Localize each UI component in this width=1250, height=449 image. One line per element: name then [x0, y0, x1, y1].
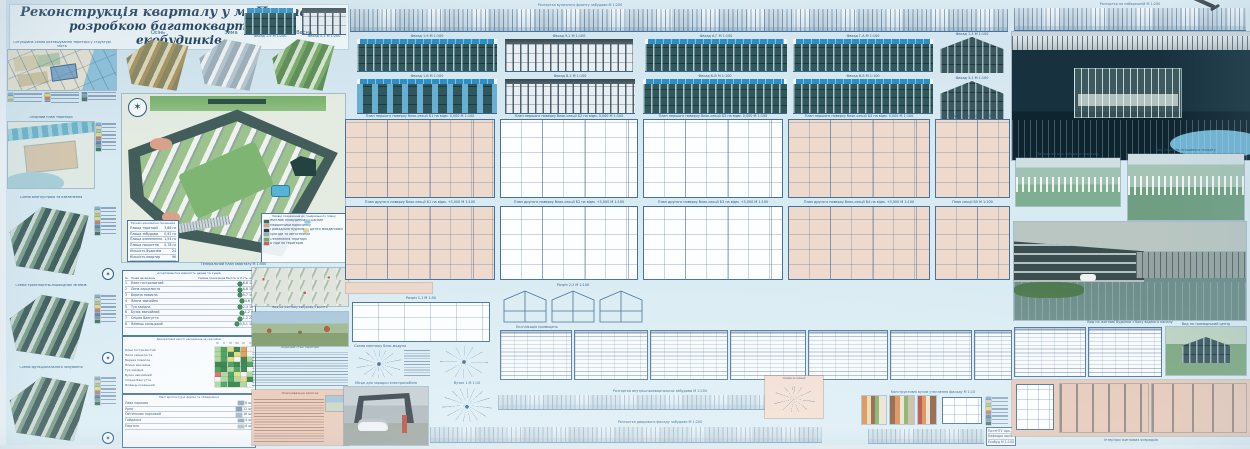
- matrix-cell: [215, 372, 221, 377]
- legend-chip: [95, 221, 100, 224]
- legend-line: [101, 303, 116, 304]
- equipment-table: Малі архітектурні форми та обладнання Ла…: [122, 394, 256, 448]
- greening-legend: [95, 206, 116, 266]
- interior-photo-2: [1152, 384, 1246, 432]
- pavilion-lit-band: [1078, 94, 1178, 106]
- facade-f3: [645, 39, 787, 72]
- strip2-caption: Розгортка дворового фасаду забудови М 1:…: [540, 420, 780, 424]
- plants-header-cell: Назва насаджень: [131, 277, 197, 281]
- legend-item: [96, 130, 116, 133]
- legend-chip: [264, 238, 269, 241]
- plants-table-title: Асортиментна відомість дерев та кущів: [125, 272, 253, 276]
- exploded-labels: [404, 350, 430, 376]
- legend-item: [82, 98, 116, 101]
- detail-mini-plan: [942, 397, 982, 424]
- legend-item: [45, 94, 79, 97]
- section-caption: Розріз 1-1 М 1:50: [352, 296, 490, 300]
- plan-caption-r2-3: План другого поверху блок-секції Б3 на в…: [643, 200, 783, 204]
- facade-body: [645, 44, 787, 71]
- legend-chip: [264, 220, 269, 223]
- table-cell: Світильник парковий: [125, 412, 235, 417]
- legend-chip: [264, 229, 269, 232]
- plants-cell: 6-8: [243, 287, 248, 292]
- legend-chip: [95, 305, 100, 308]
- park-label-chip: [208, 99, 266, 104]
- legend-chip: [95, 320, 100, 323]
- matrix-cell: [241, 347, 247, 352]
- table-cell: 1,54 га: [164, 237, 176, 242]
- matrix-cell: [221, 352, 227, 357]
- legend-item: [96, 141, 116, 144]
- legend-item: [986, 418, 1008, 421]
- legend-chip: [95, 214, 100, 217]
- legend-chip: [95, 217, 100, 220]
- street-elevation-strip-top: [350, 9, 1008, 32]
- charge-pillar: [402, 415, 407, 433]
- legend-item: В'їзди на територію: [264, 242, 303, 245]
- legend-item: Дитячі майданчики: [304, 228, 343, 231]
- plants-cell: 4: [125, 299, 130, 304]
- legend-chip: [95, 225, 100, 228]
- green-render: [1166, 327, 1246, 375]
- plants-cell: 5: [125, 305, 130, 310]
- legend-item: [95, 305, 116, 308]
- facade-f8: [793, 79, 933, 114]
- plants-cell: Бузок звичайний: [131, 310, 239, 315]
- legend-item: [95, 384, 116, 387]
- interior-photo-1: [1060, 384, 1148, 432]
- table-cell: Гойдалка: [125, 418, 237, 423]
- legend-item: [96, 133, 116, 136]
- legend-line: [992, 412, 1008, 413]
- plants-cell: 2: [125, 287, 130, 292]
- matrix-cell: [241, 372, 247, 377]
- facade-caption-f6: Фасад 8-1 М 1:100: [505, 74, 635, 78]
- legend-item: Майданчики відпочинку: [264, 224, 311, 227]
- legend-line: [102, 145, 116, 146]
- matrix-cell: [234, 362, 240, 367]
- facade-body: [357, 44, 497, 71]
- table-cell: 96: [172, 255, 176, 260]
- legend-item: [95, 402, 116, 405]
- tep-title: Техніко-економічні показники: [130, 222, 176, 225]
- plants-header-cell: Умовне позначення: [198, 277, 225, 281]
- legend-item: [96, 126, 116, 129]
- note-photo-chip: [326, 396, 346, 411]
- facade-body: [643, 84, 787, 113]
- legend-chip: [95, 228, 100, 231]
- legend-line: [992, 415, 1008, 416]
- aerial-housing-caption: Вид на житлову забудову з висоти: [252, 306, 348, 310]
- legend-item: [986, 411, 1008, 414]
- table-cell: 0,78 га: [164, 243, 176, 248]
- tep-rows: Площа території3,86 гаПлоща забудови0,92…: [130, 226, 176, 262]
- base-plan-map: [8, 122, 94, 188]
- legend-item: [95, 228, 116, 231]
- night-render: [1012, 32, 1250, 160]
- explication-caption: Експлікація приміщень: [502, 325, 572, 329]
- site-state-caption: Існуючий стан території: [252, 346, 348, 350]
- table-row: ЕкобудинкиМ 1:100: [988, 440, 1014, 446]
- facade-caption-f4: Фасад Г-А М 1:100: [793, 34, 933, 38]
- city-map-legend: [8, 92, 116, 114]
- legend-item: [96, 137, 116, 140]
- matrix-cell: [215, 377, 221, 382]
- facade-f4: [793, 39, 933, 72]
- wall-detail-1: [862, 396, 886, 424]
- legend-line: [992, 408, 1008, 409]
- matrix-cell: [241, 362, 247, 367]
- legend-chip: [45, 94, 50, 97]
- legend-chip: [95, 395, 100, 398]
- facade-caption-f1: Фасад 1-9 М 1:100: [357, 34, 497, 38]
- plants-cell: Ялина звичайна: [131, 299, 239, 304]
- legend-chip: [95, 316, 100, 319]
- schedule-table-7: [974, 330, 1012, 380]
- master-plan-caption: Генеральний план кварталу М 1:500: [122, 262, 345, 266]
- plants-cell: Клен гостролистий: [131, 281, 237, 286]
- tep-table: Техніко-економічні показники Площа терит…: [127, 220, 179, 262]
- legend-chip: [95, 313, 100, 316]
- schedule-table-4: [730, 330, 806, 380]
- facade-body: [793, 44, 933, 71]
- plan-caption-r2-4: План другого поверху блок-секції Б4 на в…: [788, 200, 930, 204]
- plants-cell: 4-6: [245, 299, 250, 304]
- plants-cell: 6-8: [243, 281, 248, 286]
- plants-cell: 0,5-1: [240, 322, 248, 327]
- matrix-cell: [234, 367, 240, 372]
- top-strip-caption: Розгортка вуличного фронту забудови М 1:…: [470, 3, 690, 7]
- gable-facade-1: [940, 37, 1004, 73]
- details-caption: Конструктивні вузли утеплення фасаду М 1…: [858, 390, 1008, 394]
- legend-item: [95, 316, 116, 319]
- ev-charging-photo: [344, 387, 428, 445]
- greening-scheme-map: [8, 204, 92, 278]
- table-cell: Площа покриттів: [130, 243, 163, 248]
- matrix-cell: [241, 382, 247, 387]
- legend-item: [986, 407, 1008, 410]
- legend-chip: [95, 302, 100, 305]
- table-cell: Площа забудови: [130, 232, 163, 237]
- legend-chip: [986, 404, 991, 407]
- legend-item: [96, 144, 116, 147]
- legend-item: [986, 400, 1008, 403]
- right-table-1: [1014, 327, 1086, 377]
- plants-cell: 7: [125, 316, 130, 321]
- season-matrix-table: Декоративні якості насаджень за сезонами…: [122, 336, 256, 394]
- table-cell: Пергола: [125, 424, 237, 429]
- photo-chip: [236, 413, 242, 417]
- matrix-cell: [234, 352, 240, 357]
- facade-caption-f2: Фасад 9-1 М 1:100: [505, 34, 633, 38]
- legend-line: [101, 310, 116, 311]
- matrix-row-label: Береза повисла: [125, 358, 214, 362]
- legend-line: [101, 233, 116, 234]
- legend-line: [101, 215, 116, 216]
- facade-body: [793, 84, 933, 113]
- plants-cell: Береза повисла: [131, 293, 237, 298]
- schedule-table-5: [808, 330, 888, 380]
- legend-item: [95, 298, 116, 301]
- aerial2-caption: Вид з висоти пташиного польоту: [1128, 148, 1244, 152]
- legend-line: [101, 222, 116, 223]
- legend-line: [992, 423, 1008, 424]
- legend-line: [51, 98, 79, 99]
- legend-line: [101, 381, 116, 382]
- matrix-cell: [228, 382, 234, 387]
- zoning-scheme-map: [8, 374, 92, 444]
- green-bank: [1014, 282, 1084, 298]
- legend-item: [8, 93, 42, 96]
- facade-f5: [357, 79, 497, 114]
- gable-sections-drawing: [502, 288, 644, 324]
- aerial-render-1: [1016, 158, 1120, 206]
- plants-header-cell: Висота, м: [226, 277, 239, 281]
- matrix-cell: [228, 362, 234, 367]
- legend-chip: [82, 98, 87, 101]
- facade-f7: [643, 79, 787, 114]
- legend-item: [95, 395, 116, 398]
- map1-caption: Ситуаційна схема розташування території …: [8, 41, 116, 49]
- legend-line: [101, 403, 116, 404]
- tree-symbol-icon: [240, 311, 244, 315]
- dark-gable-house: [1182, 337, 1230, 363]
- legend-chip: [95, 377, 100, 380]
- floor-plan-r2-2: [500, 206, 638, 280]
- matrix-cell: [221, 367, 227, 372]
- legend-line: [102, 149, 116, 150]
- plants-cell: 2-3: [243, 305, 248, 310]
- unit-mini-plan: [1016, 384, 1054, 430]
- legend-chip: [96, 123, 101, 126]
- legend-line: [102, 123, 116, 124]
- matrix-cell: [215, 362, 221, 367]
- legend-line: [992, 401, 1008, 402]
- facade-caption-f3: Фасад А-Г М 1:100: [645, 34, 787, 38]
- note-text: [254, 398, 324, 442]
- gable-caption-1: Фасад 1-3 М 1:100: [938, 32, 1006, 36]
- legend-item: [986, 397, 1008, 400]
- territory-blob: [25, 141, 77, 172]
- tree-symbol-icon: [235, 322, 239, 326]
- rowhouses-left: [1014, 238, 1144, 282]
- matrix-cell: [234, 382, 240, 387]
- interior-band: [1012, 380, 1250, 436]
- legend-chip: [8, 96, 13, 99]
- white-car: [358, 419, 388, 431]
- legend-item: [96, 148, 116, 151]
- floor-plan-r1-5: [935, 119, 1010, 198]
- legend-item: [95, 387, 116, 390]
- master-plan: ✶ Техніко-економічні показники Площа тер…: [122, 94, 345, 262]
- legend-label: Житлові екобудинки: [270, 219, 305, 222]
- legend-item: [95, 391, 116, 394]
- explanatory-note: Пояснювальна записка: [252, 390, 348, 445]
- legend-chip: [45, 97, 50, 100]
- plaza-1: [150, 138, 172, 150]
- floor-plan-r2-5: [935, 206, 1010, 280]
- node-caption: Вузол 1 М 1:10: [438, 381, 496, 385]
- legend-line: [101, 385, 116, 386]
- matrix-col-label: IV: [215, 342, 221, 347]
- legend-chip: [95, 384, 100, 387]
- legend-line: [992, 405, 1008, 406]
- canal-render: [1014, 222, 1246, 320]
- table-cell: 24: [172, 249, 176, 254]
- legend-chip: [986, 415, 991, 418]
- matrix-cell: [221, 372, 227, 377]
- matrix-cell: [221, 347, 227, 352]
- legend-chip: [96, 137, 101, 140]
- legend-chip: [95, 398, 100, 401]
- legend-item: [95, 225, 116, 228]
- photo-chip: [238, 419, 244, 423]
- legend-chip: [96, 133, 101, 136]
- equipment-title: Малі архітектурні форми та обладнання: [125, 396, 253, 399]
- plants-cell: 1: [125, 281, 130, 286]
- street-elevation-strip-3: [868, 429, 984, 444]
- legend-item: Проїзди та автостоянки: [264, 233, 310, 236]
- building-specks: [1016, 177, 1120, 191]
- plants-cell: 1-2: [243, 316, 248, 321]
- legend-item: [95, 210, 116, 213]
- legend-label: Громадська будівля: [270, 228, 304, 231]
- floor-plan-r1-3: [643, 119, 783, 198]
- legend-chip: [264, 224, 269, 227]
- masterplan-legend-items: Житлові екобудинкиБасейнМайданчики відпо…: [264, 219, 344, 246]
- building-specks: [1128, 176, 1244, 194]
- legend-item: [8, 96, 42, 99]
- legend-chip: [8, 93, 13, 96]
- zoning-legend: [95, 376, 116, 434]
- matrix-cell: [215, 367, 221, 372]
- matrix-col-label: IX: [241, 342, 247, 347]
- table-cell: 0,92 га: [164, 232, 176, 237]
- floor-plan-r1-1: [345, 119, 495, 198]
- legend-item: [986, 404, 1008, 407]
- aerial-housing-photo: [252, 268, 348, 306]
- pool: [272, 186, 289, 196]
- legend-chip: [95, 207, 100, 210]
- legend-chip: [986, 407, 991, 410]
- green-render-caption: Вид на громадський центр: [1166, 322, 1246, 326]
- matrix-row: Клен гостролистий: [125, 347, 253, 352]
- table-cell: Площа озеленення: [130, 237, 163, 242]
- legend-line: [101, 392, 116, 393]
- plants-cell: Туя західна: [131, 305, 237, 310]
- tree-symbol-icon: [238, 305, 242, 309]
- legend-item: [95, 217, 116, 220]
- table-cell: Площа території: [130, 226, 163, 231]
- gable-section-caption: Розріз 2-2 М 1:100: [502, 283, 644, 287]
- matrix-row-label: Клен гостролистий: [125, 348, 214, 352]
- legend-label: Озеленення території: [270, 238, 307, 241]
- legend-line: [101, 229, 116, 230]
- legend-item: Житлові екобудинки: [264, 219, 305, 222]
- floor-plan-r2-4: [788, 206, 930, 280]
- legend-item: [986, 422, 1008, 425]
- white-car: [1080, 274, 1096, 281]
- matrix-cell: [221, 357, 227, 362]
- matrix-row-label: Липа серцелиста: [125, 353, 214, 357]
- transport-legend: [95, 294, 116, 352]
- transport-scheme-map: [8, 292, 92, 362]
- matrix-col-label: V: [221, 342, 227, 347]
- facade-f2: [505, 39, 633, 72]
- city-map: [8, 50, 116, 90]
- plants-cell: 3: [125, 293, 130, 298]
- ev-photo-caption: Місце для зарядки електромобілів: [344, 381, 428, 385]
- facade-body: [505, 84, 635, 113]
- matrix-body: IVVVIVIIIXXКлен гостролистийЛипа серцели…: [125, 342, 253, 386]
- exploded-axon-sketch: [356, 350, 402, 378]
- facade-f6: [505, 79, 635, 114]
- tree-symbol-icon: [238, 293, 242, 297]
- masterplan-legend: Умовні позначення до генерального плану …: [262, 214, 345, 262]
- legend-chip: [96, 141, 101, 144]
- plants-rows: №Назва насадженьУмовне позначенняВисота,…: [125, 277, 253, 328]
- legend-label: Майданчики відпочинку: [270, 224, 311, 227]
- matrix-cell: [215, 357, 221, 362]
- glass-pavilion: [1074, 68, 1182, 118]
- legend-line: [88, 95, 116, 96]
- matrix-row: Липа серцелиста: [125, 352, 253, 357]
- legend-line: [101, 399, 116, 400]
- legend-line: [101, 207, 116, 208]
- matrix-cell: [228, 347, 234, 352]
- tree-symbol-icon: [238, 317, 242, 321]
- map5-caption: Схема функціонального зонування: [8, 366, 94, 370]
- compass-icon: ✶: [102, 432, 114, 444]
- legend-chip: [96, 130, 101, 133]
- gable-caption-2: Фасад 3-1 М 1:100: [938, 76, 1006, 80]
- matrix-cell: [234, 372, 240, 377]
- legend-label: Проїзди та автостоянки: [270, 233, 310, 236]
- legend-line: [101, 299, 116, 300]
- matrix-cell: [215, 347, 221, 352]
- plants-cell: 5-7: [243, 293, 248, 298]
- table-cell: 3,86 га: [164, 226, 176, 231]
- legend-item: [95, 377, 116, 380]
- matrix-col-label: VII: [234, 342, 240, 347]
- matrix-row-label: Спірея Вангутта: [125, 378, 214, 382]
- matrix-row: Береза повисла: [125, 357, 253, 362]
- aerial-render-2: [1128, 154, 1244, 220]
- legend-chip: [986, 422, 991, 425]
- legend-line: [101, 295, 116, 296]
- plants-cell: Липа серцелиста: [131, 287, 237, 292]
- detail-legend: [986, 396, 1008, 424]
- plants-cell: 1-2: [245, 310, 250, 315]
- exploded-caption: Схема монтажу блок-модуля: [348, 344, 412, 348]
- far-buildings: [1012, 36, 1250, 50]
- legend-label: Басейн: [311, 219, 323, 222]
- legend-item: Громадська будівля: [264, 228, 304, 231]
- legend-chip: [95, 232, 100, 235]
- equipment-rows: Лава паркова8 штУрна12 штСвітильник парк…: [125, 401, 253, 430]
- legend-item: [95, 295, 116, 298]
- matrix-col-label: VI: [228, 342, 234, 347]
- plants-row: 8Ялівець козацький0,5-118: [125, 322, 253, 328]
- matrix-cell: [221, 362, 227, 367]
- matrix-cell: [241, 352, 247, 357]
- legend-item: [95, 313, 116, 316]
- base-plan-legend: [96, 122, 116, 188]
- legend-chip: [986, 418, 991, 421]
- map-roads: [8, 50, 116, 90]
- strip1-caption: Розгортка внутрішньоквартальної забудови…: [540, 389, 780, 393]
- legend-line: [101, 211, 116, 212]
